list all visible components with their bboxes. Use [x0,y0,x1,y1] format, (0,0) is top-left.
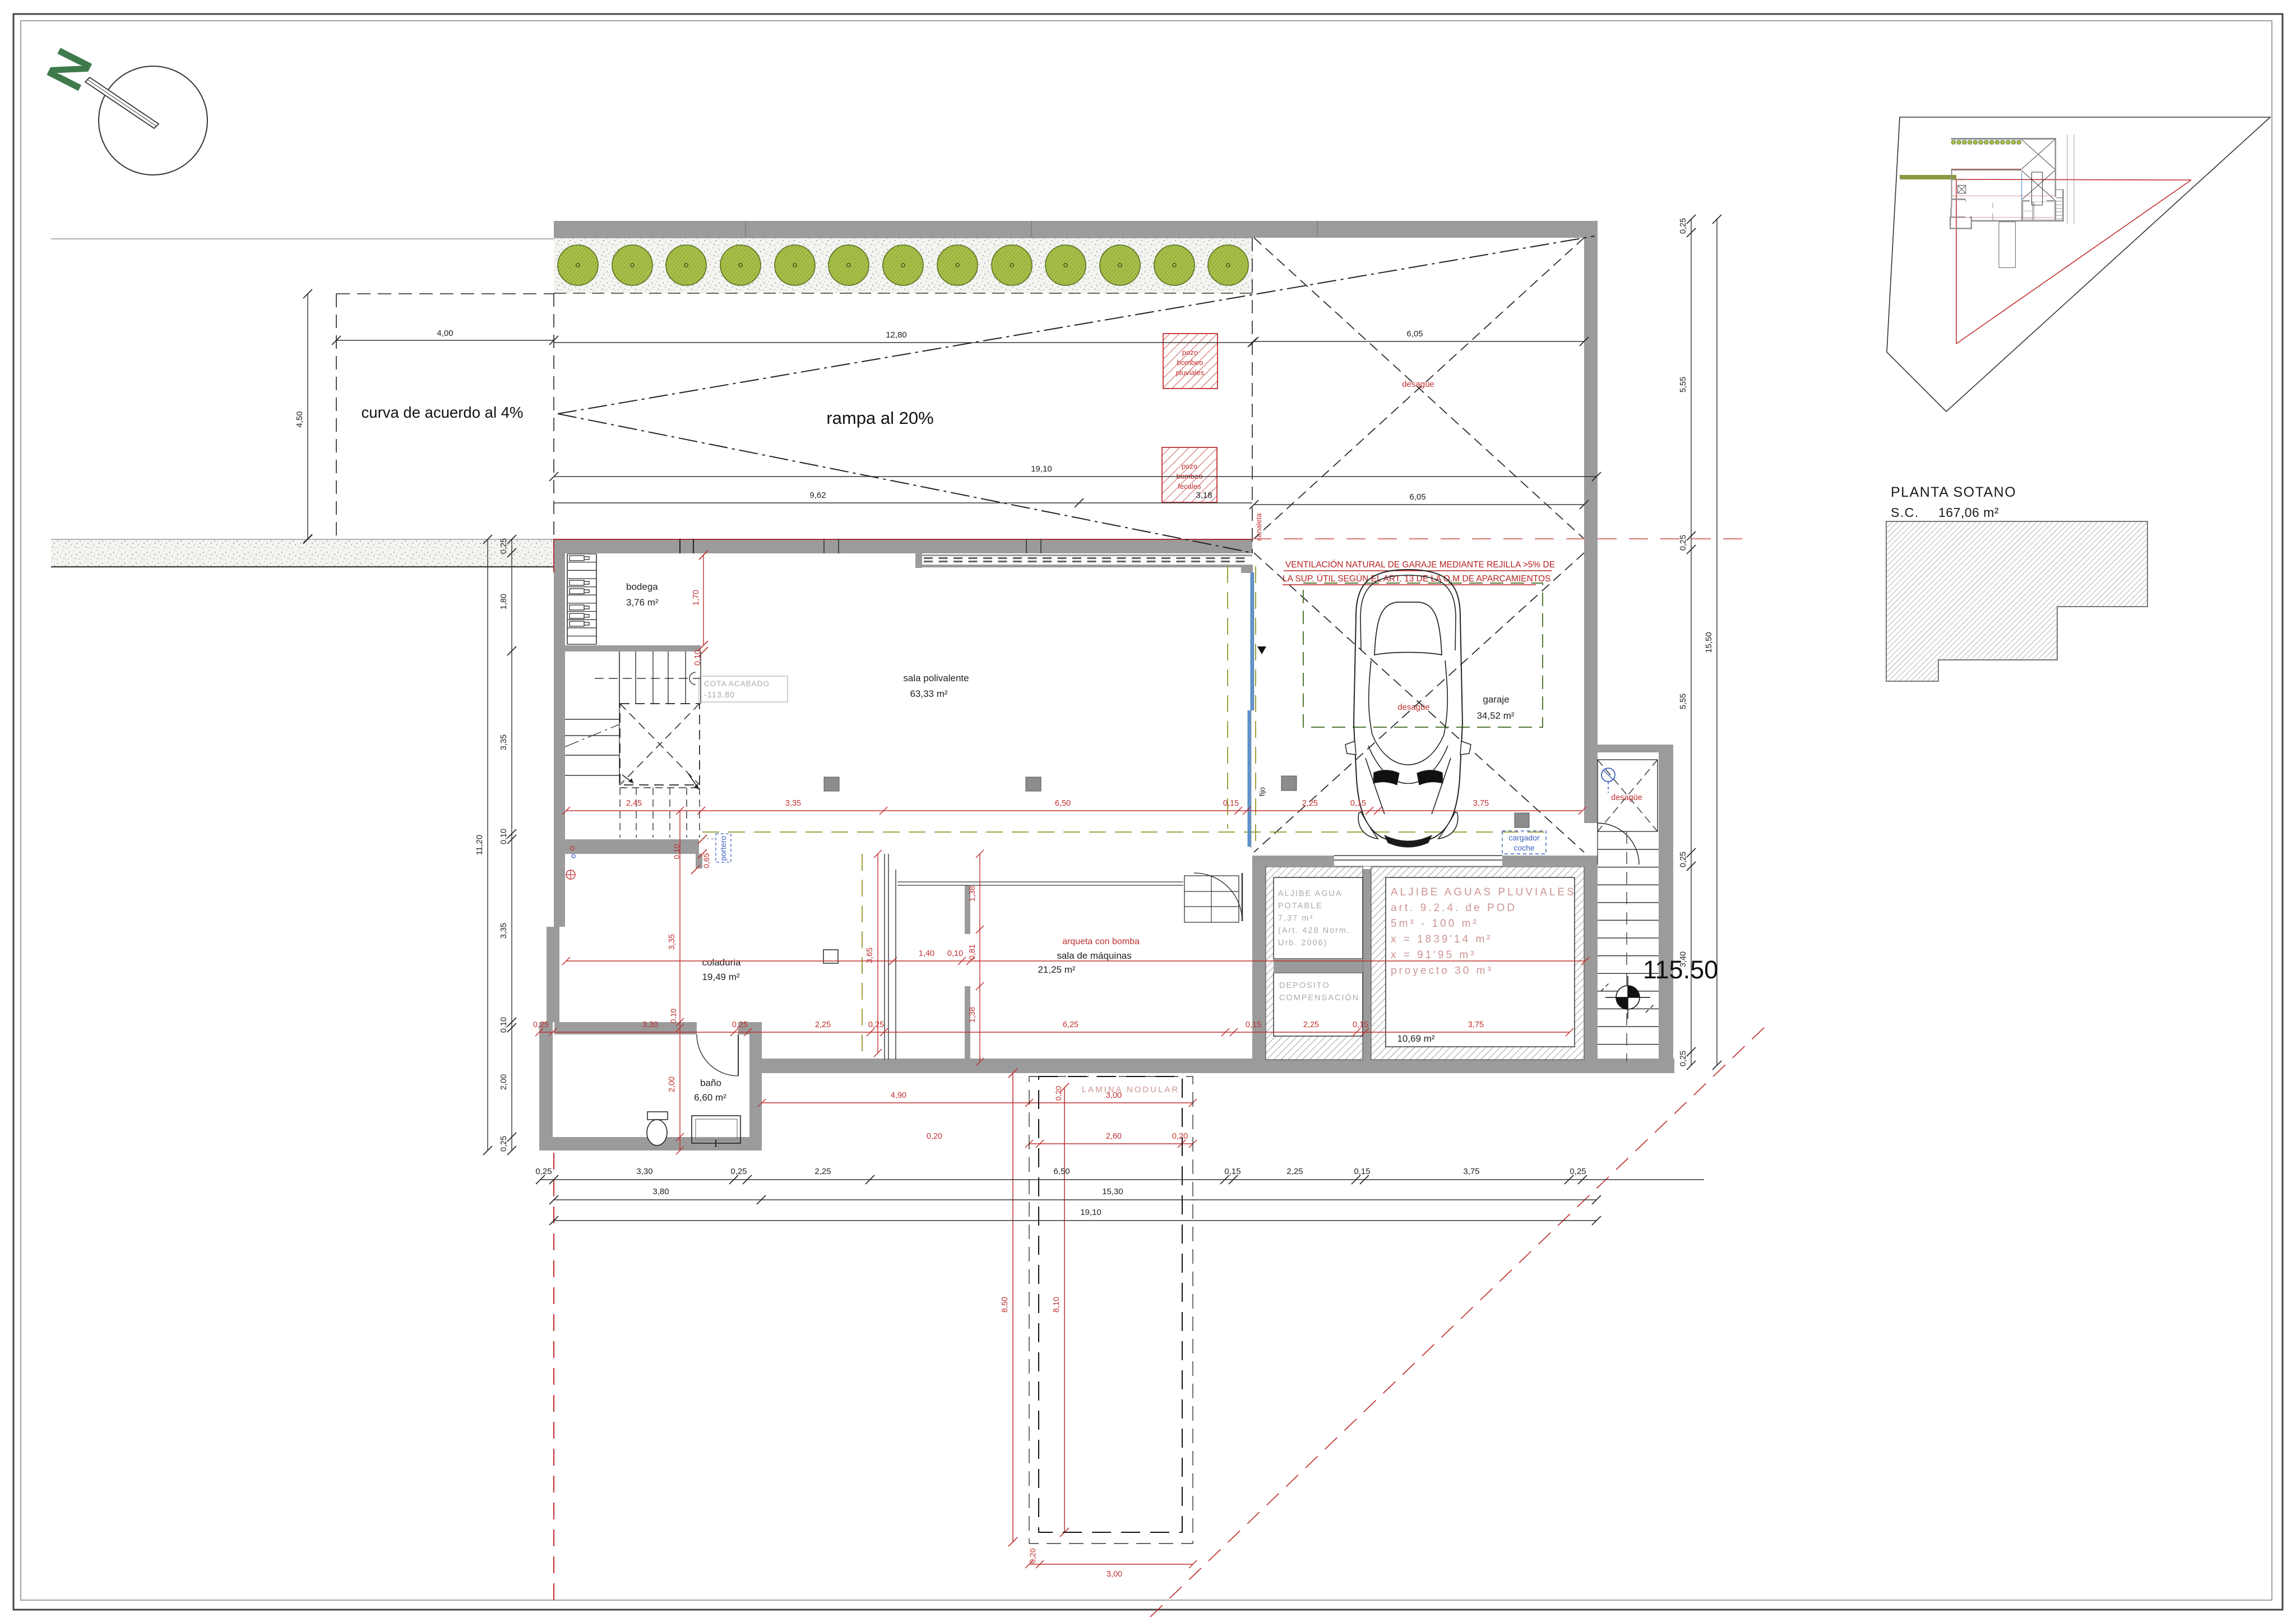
svg-text:2,45: 2,45 [626,799,642,808]
svg-text:0,25: 0,25 [1679,218,1688,234]
svg-text:sala de máquinas: sala de máquinas [1057,950,1131,961]
svg-text:rampa al 20%: rampa al 20% [826,408,933,428]
svg-text:0,65: 0,65 [702,853,711,868]
svg-text:3,75: 3,75 [1463,1167,1479,1176]
svg-text:3,35: 3,35 [785,799,801,808]
svg-text:bombeo: bombeo [1177,358,1203,367]
svg-text:VENTILACIÓN NATURAL DE GARAJE: VENTILACIÓN NATURAL DE GARAJE MEDIANTE R… [1285,560,1555,570]
svg-text:0,25: 0,25 [499,1136,508,1152]
svg-text:115.50: 115.50 [1643,955,1718,984]
svg-text:proyecto 30 m³: proyecto 30 m³ [1391,965,1493,977]
svg-text:2,25: 2,25 [1303,1020,1319,1029]
svg-text:garaje: garaje [1483,694,1509,705]
svg-text:21,25 m²: 21,25 m² [1038,964,1075,975]
svg-text:15,30: 15,30 [1102,1187,1123,1196]
svg-text:4,00: 4,00 [437,329,453,338]
svg-text:curva de acuerdo al 4%: curva de acuerdo al 4% [362,404,524,421]
svg-text:6,60 m²: 6,60 m² [694,1092,726,1103]
svg-text:0,25: 0,25 [1570,1167,1586,1176]
svg-text:desagüe: desagüe [1402,380,1434,389]
svg-text:12,80: 12,80 [886,330,907,340]
svg-text:0,15: 0,15 [1224,1167,1240,1176]
svg-text:3,35: 3,35 [668,934,677,950]
svg-text:0,25: 0,25 [1679,852,1688,867]
svg-text:coladuria: coladuria [702,957,742,968]
svg-text:art. 9.2.4. de POD: art. 9.2.4. de POD [1391,902,1517,914]
svg-text:(Art. 428 Norm.: (Art. 428 Norm. [1278,926,1350,935]
svg-text:4,90: 4,90 [891,1091,906,1100]
svg-text:0,25: 0,25 [535,1167,552,1176]
svg-text:portero: portero [719,836,728,861]
svg-text:3,30: 3,30 [642,1020,658,1029]
svg-text:0,25: 0,25 [499,538,508,554]
svg-text:coche: coche [1513,843,1535,852]
svg-text:0,10: 0,10 [669,1009,678,1023]
svg-text:baño: baño [700,1078,721,1088]
svg-text:0,25: 0,25 [1679,1051,1688,1066]
svg-text:0,10: 0,10 [947,949,963,958]
svg-text:3,76 m²: 3,76 m² [626,597,659,608]
svg-text:0,15: 0,15 [1353,1020,1368,1029]
svg-text:COMPENSACIÓN: COMPENSACIÓN [1279,993,1359,1002]
svg-text:0,15: 0,15 [1223,799,1239,808]
svg-text:3,35: 3,35 [499,734,508,750]
svg-text:fecales: fecales [1178,482,1201,491]
svg-text:0,10: 0,10 [499,829,508,844]
svg-text:2,25: 2,25 [1302,799,1318,808]
svg-text:2,00: 2,00 [499,1074,508,1090]
svg-text:3,80: 3,80 [652,1187,669,1196]
svg-text:3,30: 3,30 [636,1167,652,1176]
svg-text:1,38: 1,38 [968,886,977,902]
svg-text:0,25: 0,25 [730,1167,747,1176]
svg-text:x = 91'95 m³: x = 91'95 m³ [1391,949,1476,961]
svg-text:arqueta con bomba: arqueta con bomba [1062,937,1140,946]
svg-text:PLANTA SOTANO: PLANTA SOTANO [1891,484,2016,500]
svg-text:8,10: 8,10 [1052,1297,1061,1313]
svg-text:0,20: 0,20 [1028,1548,1037,1563]
svg-text:Urb. 2006): Urb. 2006) [1278,939,1328,948]
svg-text:0,25: 0,25 [868,1020,884,1029]
svg-text:0,15: 0,15 [1354,1167,1370,1176]
svg-text:3,35: 3,35 [499,923,508,939]
svg-text:1,70: 1,70 [692,590,701,606]
svg-text:0,15: 0,15 [1246,1020,1261,1029]
svg-text:2,25: 2,25 [1286,1167,1303,1176]
svg-text:ALJIBE AGUA: ALJIBE AGUA [1278,889,1343,898]
svg-text:63,33 m²: 63,33 m² [910,688,947,699]
svg-text:pluviales: pluviales [1176,368,1205,377]
svg-text:0,20: 0,20 [1172,1132,1188,1141]
svg-text:0,25: 0,25 [1679,535,1688,551]
svg-text:0,10: 0,10 [499,1017,508,1033]
svg-text:5,55: 5,55 [1679,377,1688,392]
svg-text:bodega: bodega [626,581,658,592]
svg-text:6,25: 6,25 [1063,1020,1078,1029]
svg-text:6,50: 6,50 [1055,799,1071,808]
svg-text:6,05: 6,05 [1406,329,1423,339]
svg-text:19,49 m²: 19,49 m² [702,972,739,982]
svg-text:0,20: 0,20 [1054,1086,1063,1101]
svg-text:15,50: 15,50 [1704,632,1714,653]
svg-text:1,80: 1,80 [499,594,508,609]
svg-text:fijo: fijo [1258,787,1266,797]
svg-text:6,05: 6,05 [1409,492,1425,502]
svg-text:0,25: 0,25 [732,1020,748,1029]
svg-text:8,50: 8,50 [1001,1297,1010,1313]
svg-text:0,81: 0,81 [968,944,977,960]
svg-text:0,25: 0,25 [533,1020,549,1029]
svg-text:11,20: 11,20 [475,835,484,855]
svg-text:S.C.: S.C. [1891,505,1919,520]
svg-text:x = 1839'14 m²: x = 1839'14 m² [1391,934,1493,945]
svg-text:COTA ACABADO: COTA ACABADO [704,680,770,688]
svg-text:ALJIBE AGUAS PLUVIALES: ALJIBE AGUAS PLUVIALES [1391,886,1576,898]
svg-text:desagüe: desagüe [1397,703,1430,712]
svg-text:5m³ - 100 m²: 5m³ - 100 m² [1391,918,1479,930]
svg-text:3,00: 3,00 [1107,1570,1122,1579]
svg-text:19,10: 19,10 [1031,464,1052,474]
svg-text:pozo: pozo [1182,348,1198,357]
svg-text:1,40: 1,40 [919,949,934,958]
svg-text:5,55: 5,55 [1679,694,1688,709]
svg-text:1,38: 1,38 [968,1007,977,1023]
svg-text:3,65: 3,65 [865,948,874,963]
svg-text:DEPOSITO: DEPOSITO [1279,981,1330,990]
svg-text:2,60: 2,60 [1106,1132,1122,1141]
svg-text:LAMINA NODULAR: LAMINA NODULAR [1082,1085,1180,1094]
svg-text:POTABLE: POTABLE [1278,902,1323,911]
svg-text:10,69 m²: 10,69 m² [1397,1033,1434,1044]
svg-text:3,75: 3,75 [1468,1020,1484,1029]
svg-text:167,06 m²: 167,06 m² [1938,505,1999,520]
svg-text:7,37 m³: 7,37 m³ [1278,914,1313,923]
svg-text:2,00: 2,00 [668,1076,677,1092]
svg-text:3,18: 3,18 [1196,491,1212,500]
svg-text:19,10: 19,10 [1080,1208,1101,1217]
svg-text:pozo: pozo [1182,462,1197,470]
svg-text:desagüe: desagüe [1611,793,1642,802]
svg-text:2,25: 2,25 [814,1167,831,1176]
svg-text:0,15: 0,15 [1350,799,1366,808]
svg-text:9,62: 9,62 [809,491,826,500]
svg-text:34,52 m²: 34,52 m² [1476,710,1514,721]
svg-text:3,75: 3,75 [1473,799,1489,808]
svg-text:-113.80: -113.80 [704,691,735,700]
svg-text:2,25: 2,25 [815,1020,831,1029]
svg-text:cargador: cargador [1508,833,1540,842]
svg-text:6,50: 6,50 [1053,1167,1070,1176]
svg-text:4,50: 4,50 [295,411,304,427]
svg-text:3,00: 3,00 [1106,1091,1122,1100]
svg-text:sala polivalente: sala polivalente [903,673,969,683]
svg-text:0,20: 0,20 [927,1132,942,1141]
